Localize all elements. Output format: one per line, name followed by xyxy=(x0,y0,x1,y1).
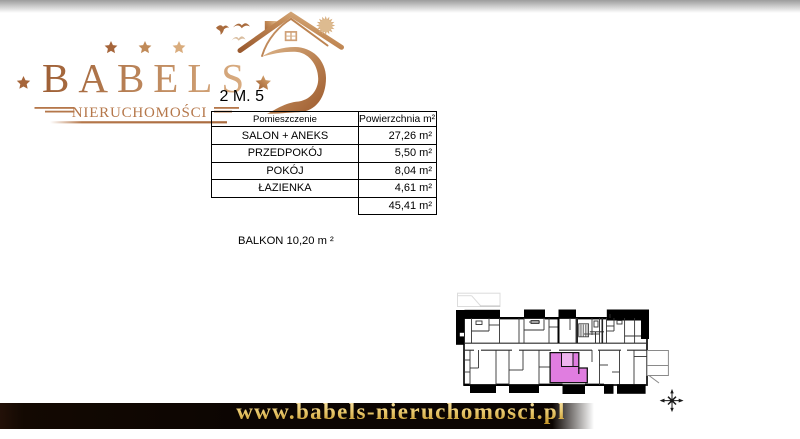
svg-text:www.babels-nieruchomosci.pl: www.babels-nieruchomosci.pl xyxy=(236,401,566,424)
svg-text:NIERUCHOMOŚCI: NIERUCHOMOŚCI xyxy=(72,104,207,121)
